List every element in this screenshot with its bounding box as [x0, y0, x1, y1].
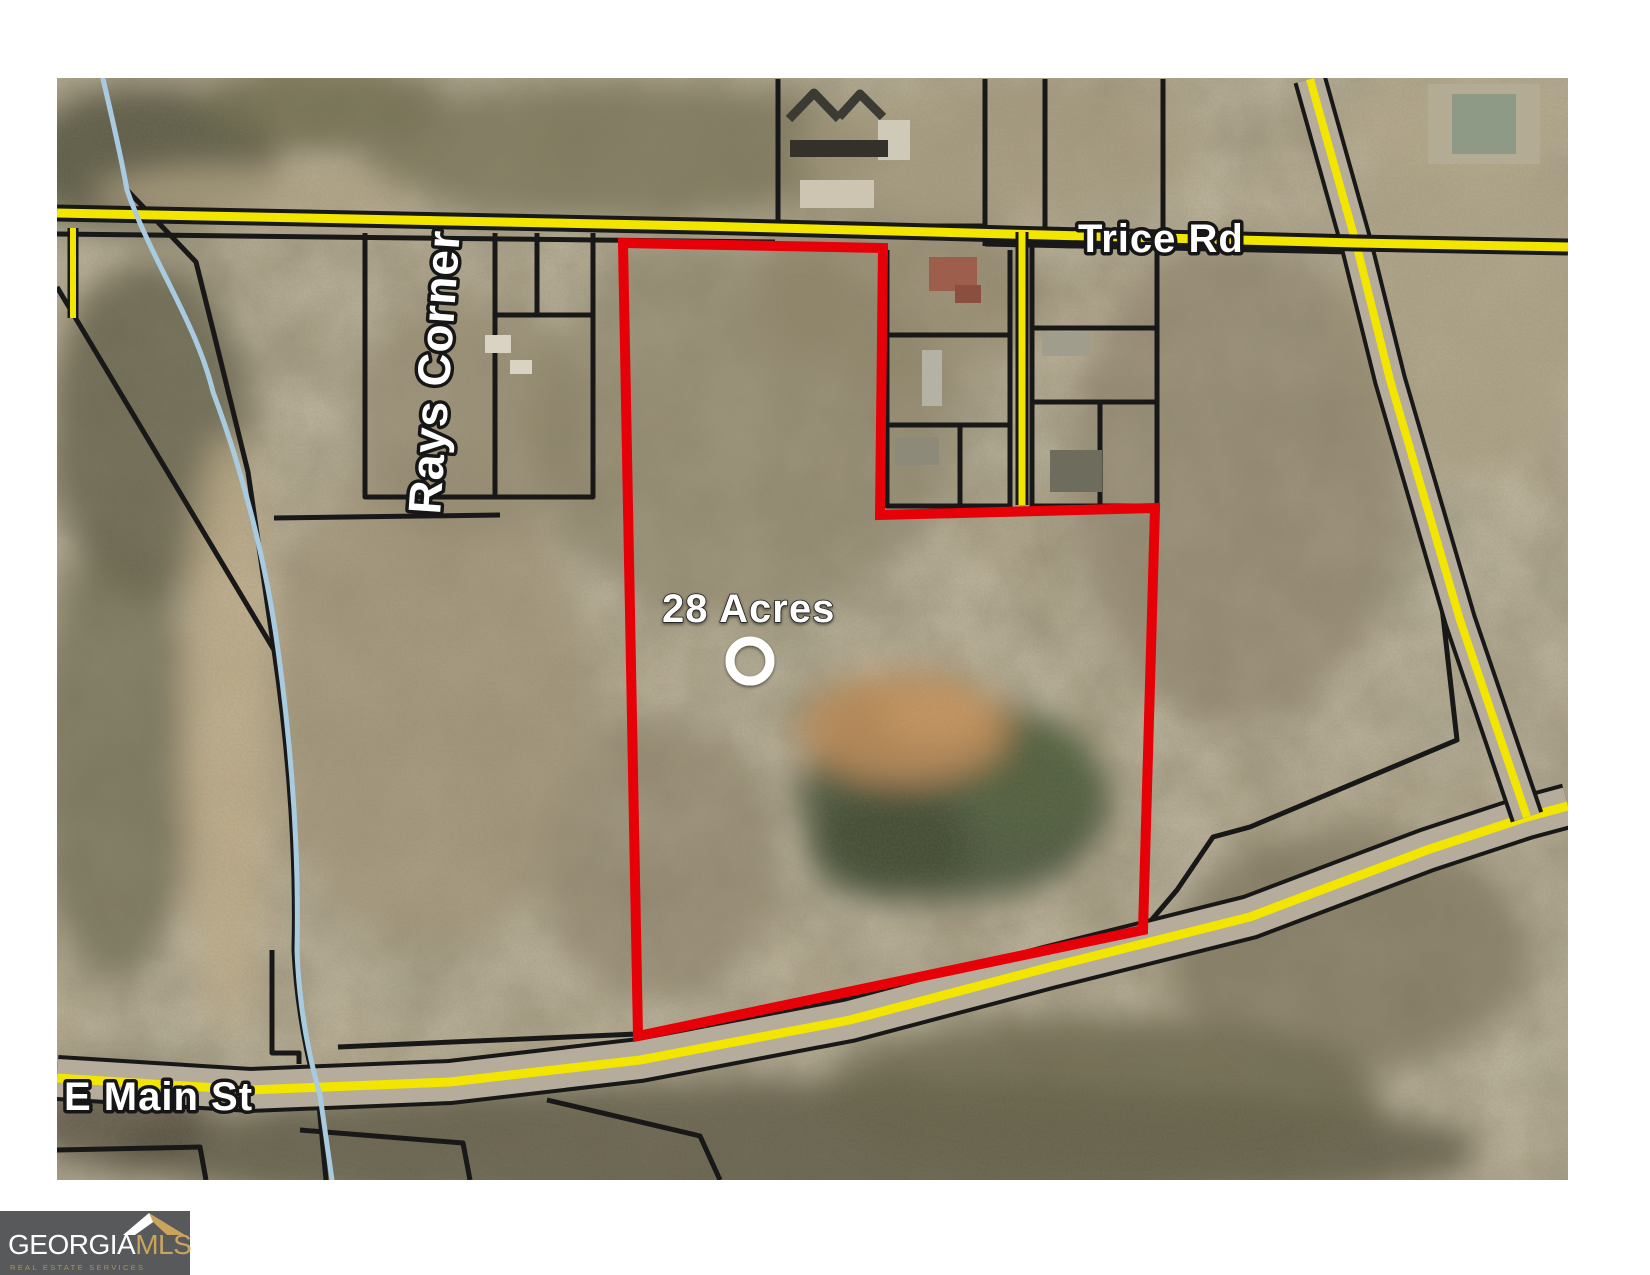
logo-text-mls: MLS	[135, 1229, 191, 1260]
acreage-label: 28 Acres	[662, 587, 835, 631]
logo-text-georgia: GEORGIA	[8, 1229, 135, 1260]
building-icon	[1050, 450, 1102, 492]
georgia-mls-logo: GEORGIAMLS REAL ESTATE SERVICES	[0, 1211, 190, 1275]
building-icon	[895, 437, 939, 465]
aerial-map: Trice Rd E Main St Rays Corner 28 Acres	[0, 0, 1650, 1275]
building-icon	[922, 350, 942, 406]
road-label-trice-rd: Trice Rd	[1078, 217, 1244, 261]
building-icon	[1042, 332, 1090, 356]
logo-wordmark: GEORGIAMLS	[8, 1231, 191, 1259]
building-icon	[790, 140, 888, 157]
building-icon-red-roof	[955, 285, 981, 303]
pond-icon	[1452, 94, 1516, 154]
building-icon	[485, 335, 511, 353]
parcel-line	[274, 515, 500, 518]
building-icon	[800, 180, 874, 208]
building-icon	[510, 360, 532, 374]
road-label-e-main-st: E Main St	[64, 1075, 253, 1119]
logo-tagline: REAL ESTATE SERVICES	[10, 1263, 145, 1272]
